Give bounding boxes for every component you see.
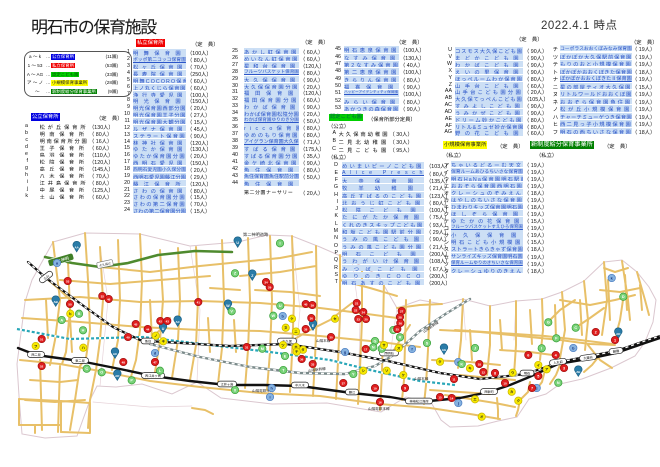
svg-text:M: M	[261, 347, 264, 351]
svg-text:2: 2	[595, 330, 597, 334]
svg-text:40: 40	[304, 302, 308, 306]
svg-text:チ: チ	[295, 350, 299, 354]
svg-text:P: P	[130, 379, 133, 383]
svg-text:48: 48	[122, 360, 126, 364]
svg-text:33: 33	[311, 362, 315, 366]
svg-text:第二神明道路: 第二神明道路	[243, 232, 269, 237]
svg-text:明石: 明石	[524, 372, 530, 376]
svg-text:W: W	[226, 304, 230, 308]
svg-text:ス: ス	[397, 346, 401, 350]
svg-text:27: 27	[400, 309, 404, 313]
svg-text:24: 24	[362, 310, 366, 314]
svg-text:29: 29	[268, 285, 272, 289]
svg-text:11: 11	[452, 377, 456, 381]
svg-text:江井ヶ島: 江井ヶ島	[221, 383, 235, 387]
svg-text:21: 21	[355, 301, 359, 305]
svg-text:藤江: 藤江	[349, 391, 356, 395]
svg-text:フ: フ	[34, 344, 38, 348]
svg-text:51: 51	[40, 337, 44, 341]
svg-text:V: V	[230, 310, 233, 314]
svg-text:16: 16	[378, 400, 382, 404]
svg-text:6: 6	[527, 353, 529, 357]
svg-text:西二見: 西二見	[31, 353, 41, 357]
svg-text:8: 8	[494, 371, 496, 375]
svg-text:東二見: 東二見	[75, 359, 85, 363]
svg-text:W: W	[272, 314, 276, 318]
svg-text:G: G	[547, 321, 550, 325]
svg-text:50: 50	[68, 302, 72, 306]
svg-text:N: N	[557, 381, 560, 385]
svg-text:U: U	[236, 241, 239, 245]
svg-text:22: 22	[354, 308, 358, 312]
svg-text:I: I	[279, 242, 280, 246]
svg-text:オ: オ	[480, 415, 484, 419]
svg-text:9: 9	[404, 386, 406, 390]
svg-text:J: J	[474, 346, 476, 350]
svg-text:カ: カ	[510, 390, 513, 394]
svg-text:ア: ア	[545, 368, 549, 372]
svg-text:山陽電鉄本線: 山陽電鉄本線	[368, 406, 390, 411]
svg-text:30: 30	[329, 335, 333, 339]
svg-text:ヒ: ヒ	[69, 312, 72, 316]
svg-text:36: 36	[310, 316, 314, 320]
svg-text:3: 3	[563, 366, 565, 370]
svg-text:28: 28	[398, 315, 402, 319]
svg-text:17: 17	[364, 347, 368, 351]
svg-text:45: 45	[134, 322, 138, 326]
svg-text:E: E	[284, 354, 287, 358]
svg-text:AE: AE	[576, 370, 580, 374]
svg-text:ヌ: ヌ	[284, 326, 287, 330]
svg-text:14: 14	[450, 396, 454, 400]
svg-text:山陽本線: 山陽本線	[414, 376, 429, 381]
svg-text:44: 44	[146, 327, 150, 331]
svg-text:32: 32	[101, 294, 105, 298]
svg-text:12: 12	[482, 370, 486, 374]
svg-text:j: j	[457, 401, 459, 405]
svg-text:A: A	[60, 318, 63, 322]
svg-text:I: I	[541, 347, 542, 351]
svg-text:ソ: ソ	[385, 369, 388, 373]
svg-text:S: S	[426, 341, 429, 345]
svg-text:中八木: 中八木	[295, 384, 305, 388]
svg-text:20: 20	[364, 317, 368, 321]
svg-text:43: 43	[166, 319, 170, 323]
svg-text:53: 53	[66, 279, 70, 283]
svg-text:52: 52	[40, 364, 44, 368]
svg-text:41: 41	[197, 300, 201, 304]
svg-text:19: 19	[373, 386, 377, 390]
svg-text:10: 10	[503, 381, 507, 385]
svg-text:U: U	[162, 327, 165, 331]
svg-text:31: 31	[245, 345, 249, 349]
svg-text:47: 47	[153, 360, 157, 364]
svg-text:46: 46	[107, 297, 111, 301]
svg-text:B: B	[78, 312, 81, 316]
svg-text:15: 15	[438, 395, 442, 399]
svg-text:Y: Y	[352, 372, 355, 376]
svg-text:AG: AG	[442, 348, 447, 352]
svg-text:5: 5	[537, 374, 539, 378]
svg-text:西新町: 西新町	[484, 390, 494, 394]
svg-text:1: 1	[614, 338, 616, 342]
svg-text:42: 42	[159, 319, 163, 323]
svg-text:C: C	[574, 326, 577, 330]
svg-text:西明石: 西明石	[384, 352, 394, 356]
svg-text:魚住: 魚住	[145, 340, 152, 344]
svg-text:N: N	[372, 346, 375, 350]
svg-text:i: i	[269, 395, 270, 399]
svg-text:D: D	[622, 295, 625, 299]
svg-text:H: H	[82, 329, 85, 333]
svg-text:O: O	[100, 371, 103, 375]
svg-text:K: K	[460, 362, 463, 366]
svg-text:25: 25	[396, 327, 400, 331]
svg-text:26: 26	[399, 321, 403, 325]
svg-text:U: U	[279, 304, 282, 308]
svg-text:38: 38	[304, 327, 308, 331]
svg-text:23: 23	[357, 317, 361, 321]
svg-text:林崎松江海岸: 林崎松江海岸	[409, 400, 429, 404]
svg-text:C: C	[85, 367, 88, 371]
svg-text:X: X	[234, 388, 237, 392]
svg-text:18: 18	[478, 362, 482, 366]
svg-text:ノ: ノ	[154, 334, 157, 338]
svg-text:36: 36	[300, 357, 304, 361]
svg-text:R: R	[399, 336, 402, 340]
svg-text:37: 37	[342, 381, 346, 385]
svg-text:39: 39	[311, 303, 315, 307]
svg-text:G: G	[374, 339, 377, 343]
svg-text:7: 7	[531, 386, 533, 390]
svg-text:49: 49	[126, 335, 130, 339]
svg-text:ウ: ウ	[511, 371, 515, 375]
